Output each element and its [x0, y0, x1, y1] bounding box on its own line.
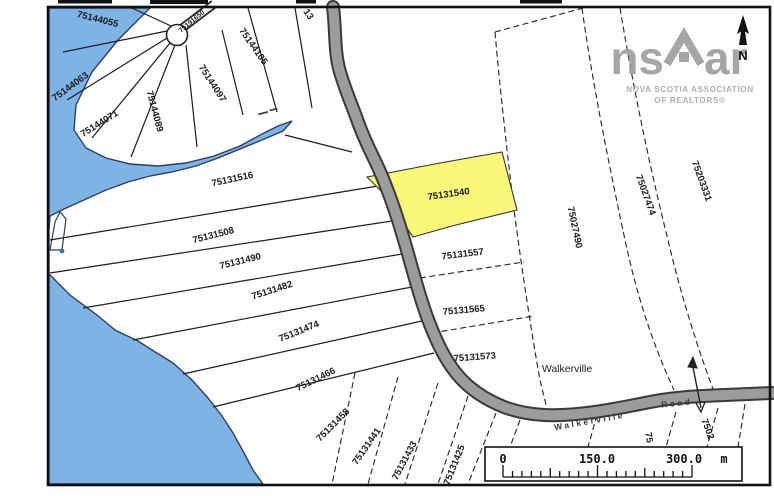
- parcel-map-screenshot: 75144055 75144063 75144071 75144089 7514…: [0, 0, 774, 496]
- place-label-walkerville: Walkerville: [542, 363, 593, 375]
- nsar-assoc-line2: OF REALTORS®: [654, 96, 725, 105]
- north-label: N: [738, 48, 747, 63]
- scale-tick-150: 150.0: [579, 452, 615, 466]
- nsar-logo-ns: ns: [610, 32, 664, 84]
- map-canvas[interactable]: 75144055 75144063 75144071 75144089 7514…: [0, 0, 774, 496]
- scale-tick-0: 0: [499, 452, 506, 466]
- water-marker-dot: [60, 249, 65, 254]
- scale-tick-300: 300.0: [666, 452, 702, 466]
- scale-unit: m: [720, 452, 727, 466]
- scale-bar: 0 150.0 300.0 m: [485, 447, 742, 481]
- nsar-assoc-line1: NOVA SCOTIA ASSOCIATION: [626, 85, 754, 94]
